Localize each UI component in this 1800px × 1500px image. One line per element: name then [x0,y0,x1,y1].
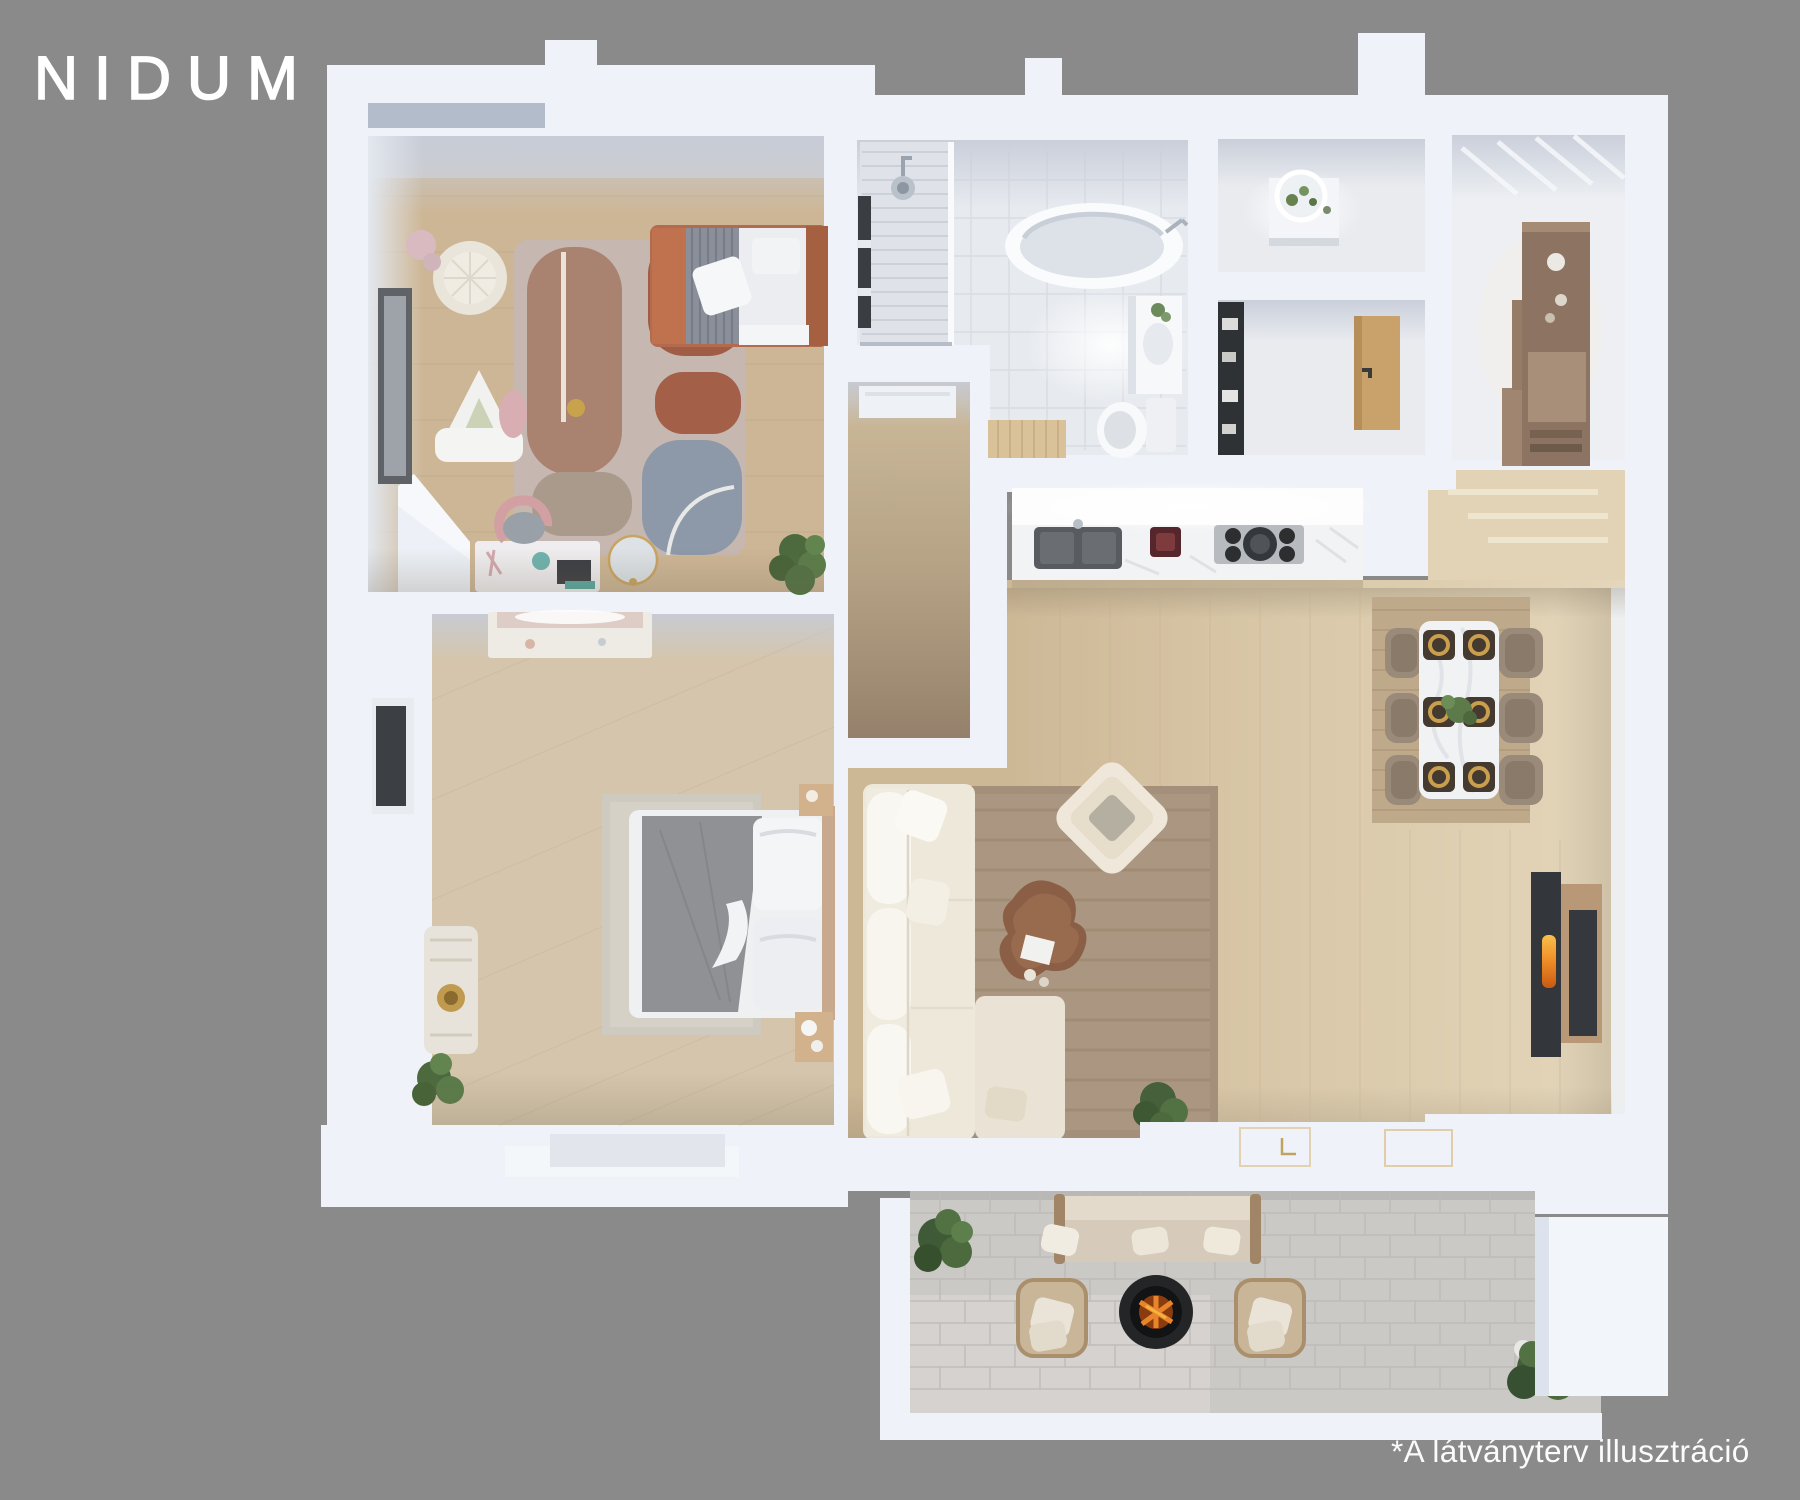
svg-text:NIDUM: NIDUM [34,44,314,112]
